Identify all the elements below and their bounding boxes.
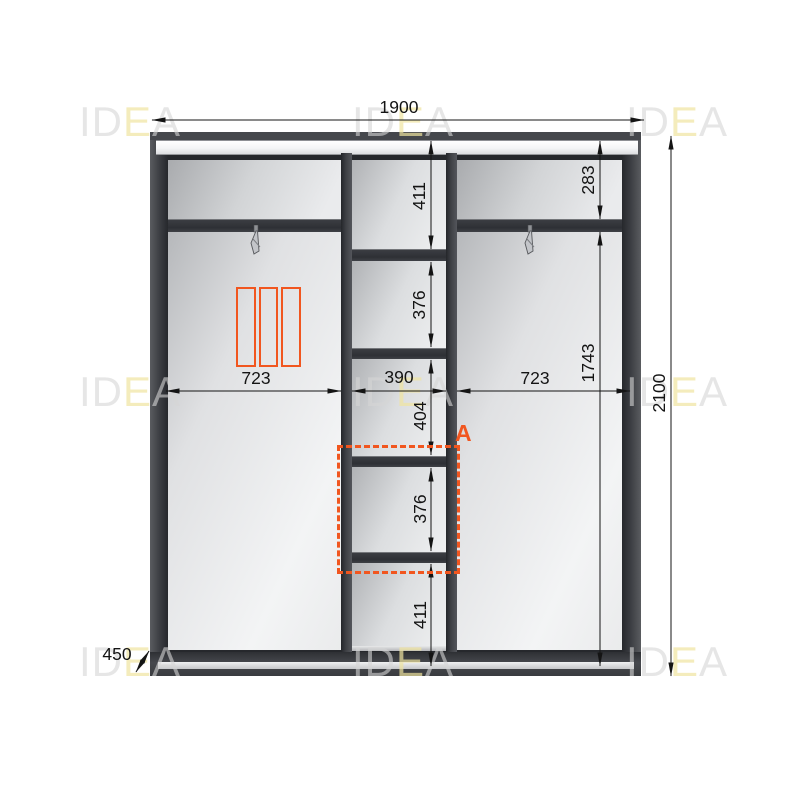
dim-label-middle-5: 411 [410, 601, 430, 629]
dim-label-depth: 450 [102, 644, 131, 664]
dim-label-overall-height: 2100 [649, 373, 669, 412]
drawer-unit-symbol [236, 287, 301, 367]
dim-label-middle-2: 376 [409, 290, 429, 319]
dim-label-right-hanging: 1743 [578, 344, 598, 383]
dim-label-middle-1: 411 [409, 182, 429, 210]
dim-label-middle-width: 390 [384, 367, 413, 387]
dim-line-depth [136, 651, 149, 672]
dim-label-left-width: 723 [241, 368, 270, 388]
section-a-label: A [455, 420, 472, 447]
dim-label-right-top: 283 [578, 165, 598, 194]
dimension-overlay: 1900 2100 283 1743 411 376 404 376 411 7… [0, 0, 800, 800]
dim-label-right-width: 723 [520, 368, 549, 388]
drawer-symbol-cell [281, 287, 301, 367]
dim-label-middle-3: 404 [410, 401, 430, 430]
dim-label-overall-width: 1900 [380, 97, 419, 117]
section-a-dashed-outline [337, 445, 460, 574]
drawer-symbol-cell [236, 287, 256, 367]
wardrobe-dimension-diagram: IDEA IDEA IDEA IDEA IDEA IDEA IDEA IDEA … [0, 0, 800, 800]
drawer-symbol-cell [259, 287, 279, 367]
